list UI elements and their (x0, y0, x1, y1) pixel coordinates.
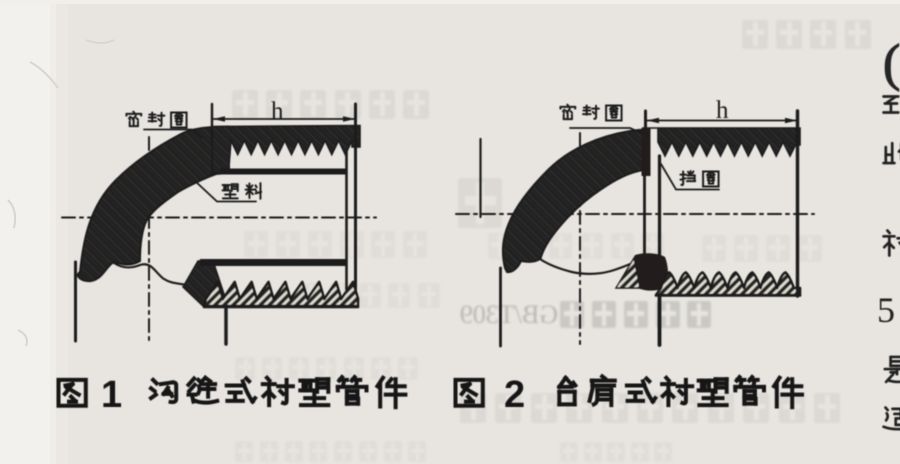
svg-text:h: h (716, 97, 729, 124)
svg-text:5: 5 (877, 290, 895, 330)
svg-text:2: 2 (504, 374, 525, 416)
svg-text:GB/T309: GB/T309 (460, 300, 558, 329)
svg-text:(: ( (883, 35, 900, 92)
svg-text:1: 1 (101, 374, 122, 416)
svg-text:h: h (271, 98, 284, 125)
